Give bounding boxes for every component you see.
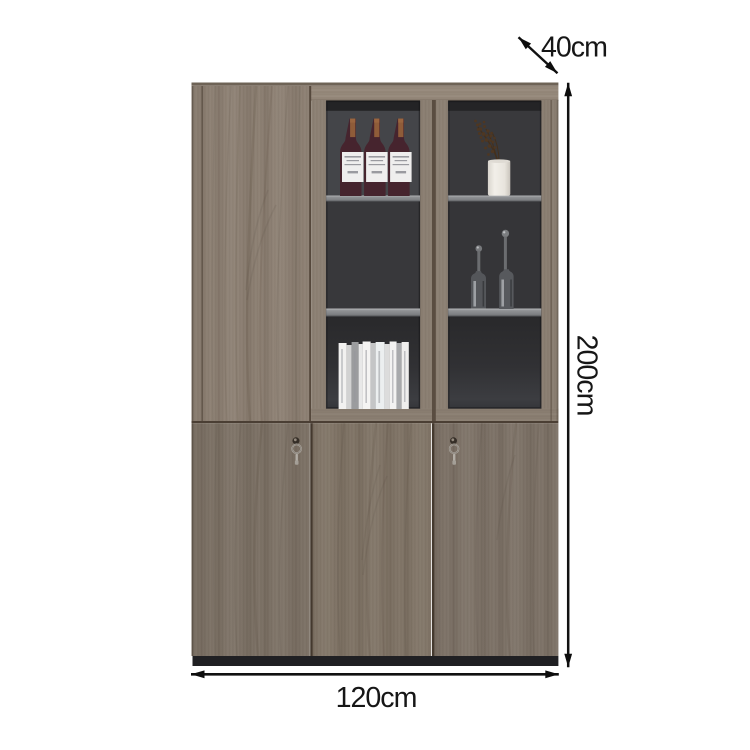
svg-text:40cm: 40cm [541,32,607,64]
svg-text:120cm: 120cm [336,682,417,714]
svg-text:200cm: 200cm [571,335,603,416]
